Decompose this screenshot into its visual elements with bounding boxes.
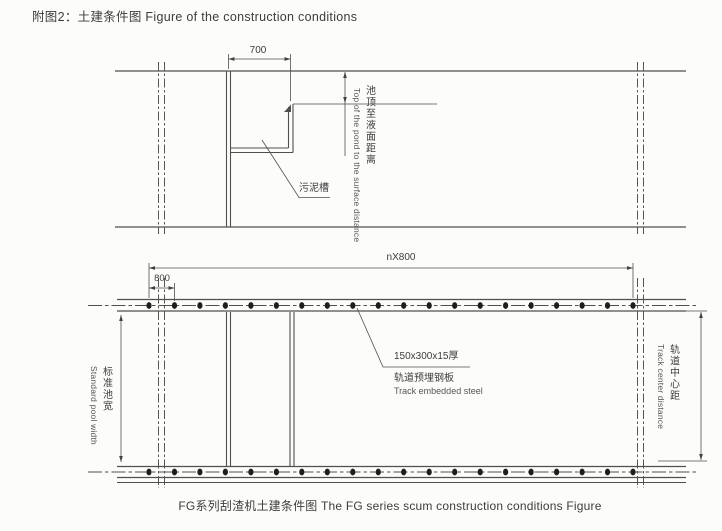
embedded-plate-dot xyxy=(580,469,585,476)
track-center-label-cn: 轨道中心距 xyxy=(667,344,679,402)
drawing-lines xyxy=(0,0,722,531)
embedded-plate-dot xyxy=(503,469,508,476)
page-title: 附图2：土建条件图 Figure of the construction con… xyxy=(32,10,357,24)
embedded-plate-dot xyxy=(223,469,228,476)
embedded-plate-dot xyxy=(274,469,279,476)
embedded-plate-dot xyxy=(350,302,355,309)
embedded-plate-dot xyxy=(325,469,330,476)
embedded-plate-dot xyxy=(452,469,457,476)
embedded-plate-dot xyxy=(580,302,585,309)
embedded-plate-dot xyxy=(478,469,483,476)
construction-conditions-figure: 附图2：土建条件图 Figure of the construction con… xyxy=(0,0,722,531)
embedded-plate-dot xyxy=(248,469,253,476)
embedded-plate-dot xyxy=(503,302,508,309)
embedded-plate-dot xyxy=(605,469,610,476)
embedded-plate-dot xyxy=(478,302,483,309)
embedded-plate-dot xyxy=(630,302,635,309)
embedded-plate-dot xyxy=(605,302,610,309)
embedded-plate-dot xyxy=(299,469,304,476)
embedded-plate-dot xyxy=(172,302,177,309)
embedded-plate-dot xyxy=(554,469,559,476)
embedded-plate-dot xyxy=(325,302,330,309)
plate-label-en: Track embedded steel xyxy=(394,386,483,396)
embedded-plate-dot xyxy=(248,302,253,309)
embedded-plate-dot xyxy=(299,302,304,309)
embedded-plate-dot xyxy=(452,302,457,309)
embedded-plate-dot xyxy=(146,469,151,476)
embedded-plate-dot xyxy=(172,469,177,476)
embedded-plate-dot xyxy=(401,302,406,309)
liquid-level-marker xyxy=(284,105,291,113)
depth-label-cn: 池顶至液面距离 xyxy=(363,85,375,166)
embedded-plate-dot xyxy=(630,469,635,476)
trough-label: 污泥槽 xyxy=(299,183,329,195)
pool-width-label-cn: 标准池宽 xyxy=(100,366,112,412)
embedded-plate-dot xyxy=(376,302,381,309)
dim-700-text: 700 xyxy=(233,45,283,57)
embedded-plate-dot xyxy=(401,469,406,476)
embedded-plate-dot xyxy=(274,302,279,309)
embedded-plate-dot xyxy=(197,469,202,476)
embedded-plate-dot xyxy=(223,302,228,309)
embedded-plate-dot xyxy=(146,302,151,309)
plate-size-label: 150x300x15厚 xyxy=(394,351,459,363)
embedded-plate-dot xyxy=(350,469,355,476)
section-view-lines xyxy=(115,54,686,234)
embedded-plate-dot xyxy=(529,302,534,309)
embedded-plate-dot xyxy=(197,302,202,309)
embedded-plate-dot xyxy=(427,302,432,309)
embedded-plate-dot xyxy=(554,302,559,309)
pool-width-label-en: Standard pool width xyxy=(88,366,98,445)
depth-label-en: Top of the pond to the surface distance xyxy=(351,88,361,242)
embedded-plate-dot xyxy=(427,469,432,476)
dim-nx800-text: nX800 xyxy=(370,252,432,264)
figure-caption: FG系列刮渣机土建条件图 The FG series scum construc… xyxy=(60,500,720,514)
plate-label-cn: 轨道预埋钢板 xyxy=(394,373,454,385)
embedded-plate-dot xyxy=(529,469,534,476)
dim-800-text: 800 xyxy=(145,274,179,285)
track-center-label-en: Track center distance xyxy=(655,344,665,429)
embedded-plate-dot xyxy=(376,469,381,476)
